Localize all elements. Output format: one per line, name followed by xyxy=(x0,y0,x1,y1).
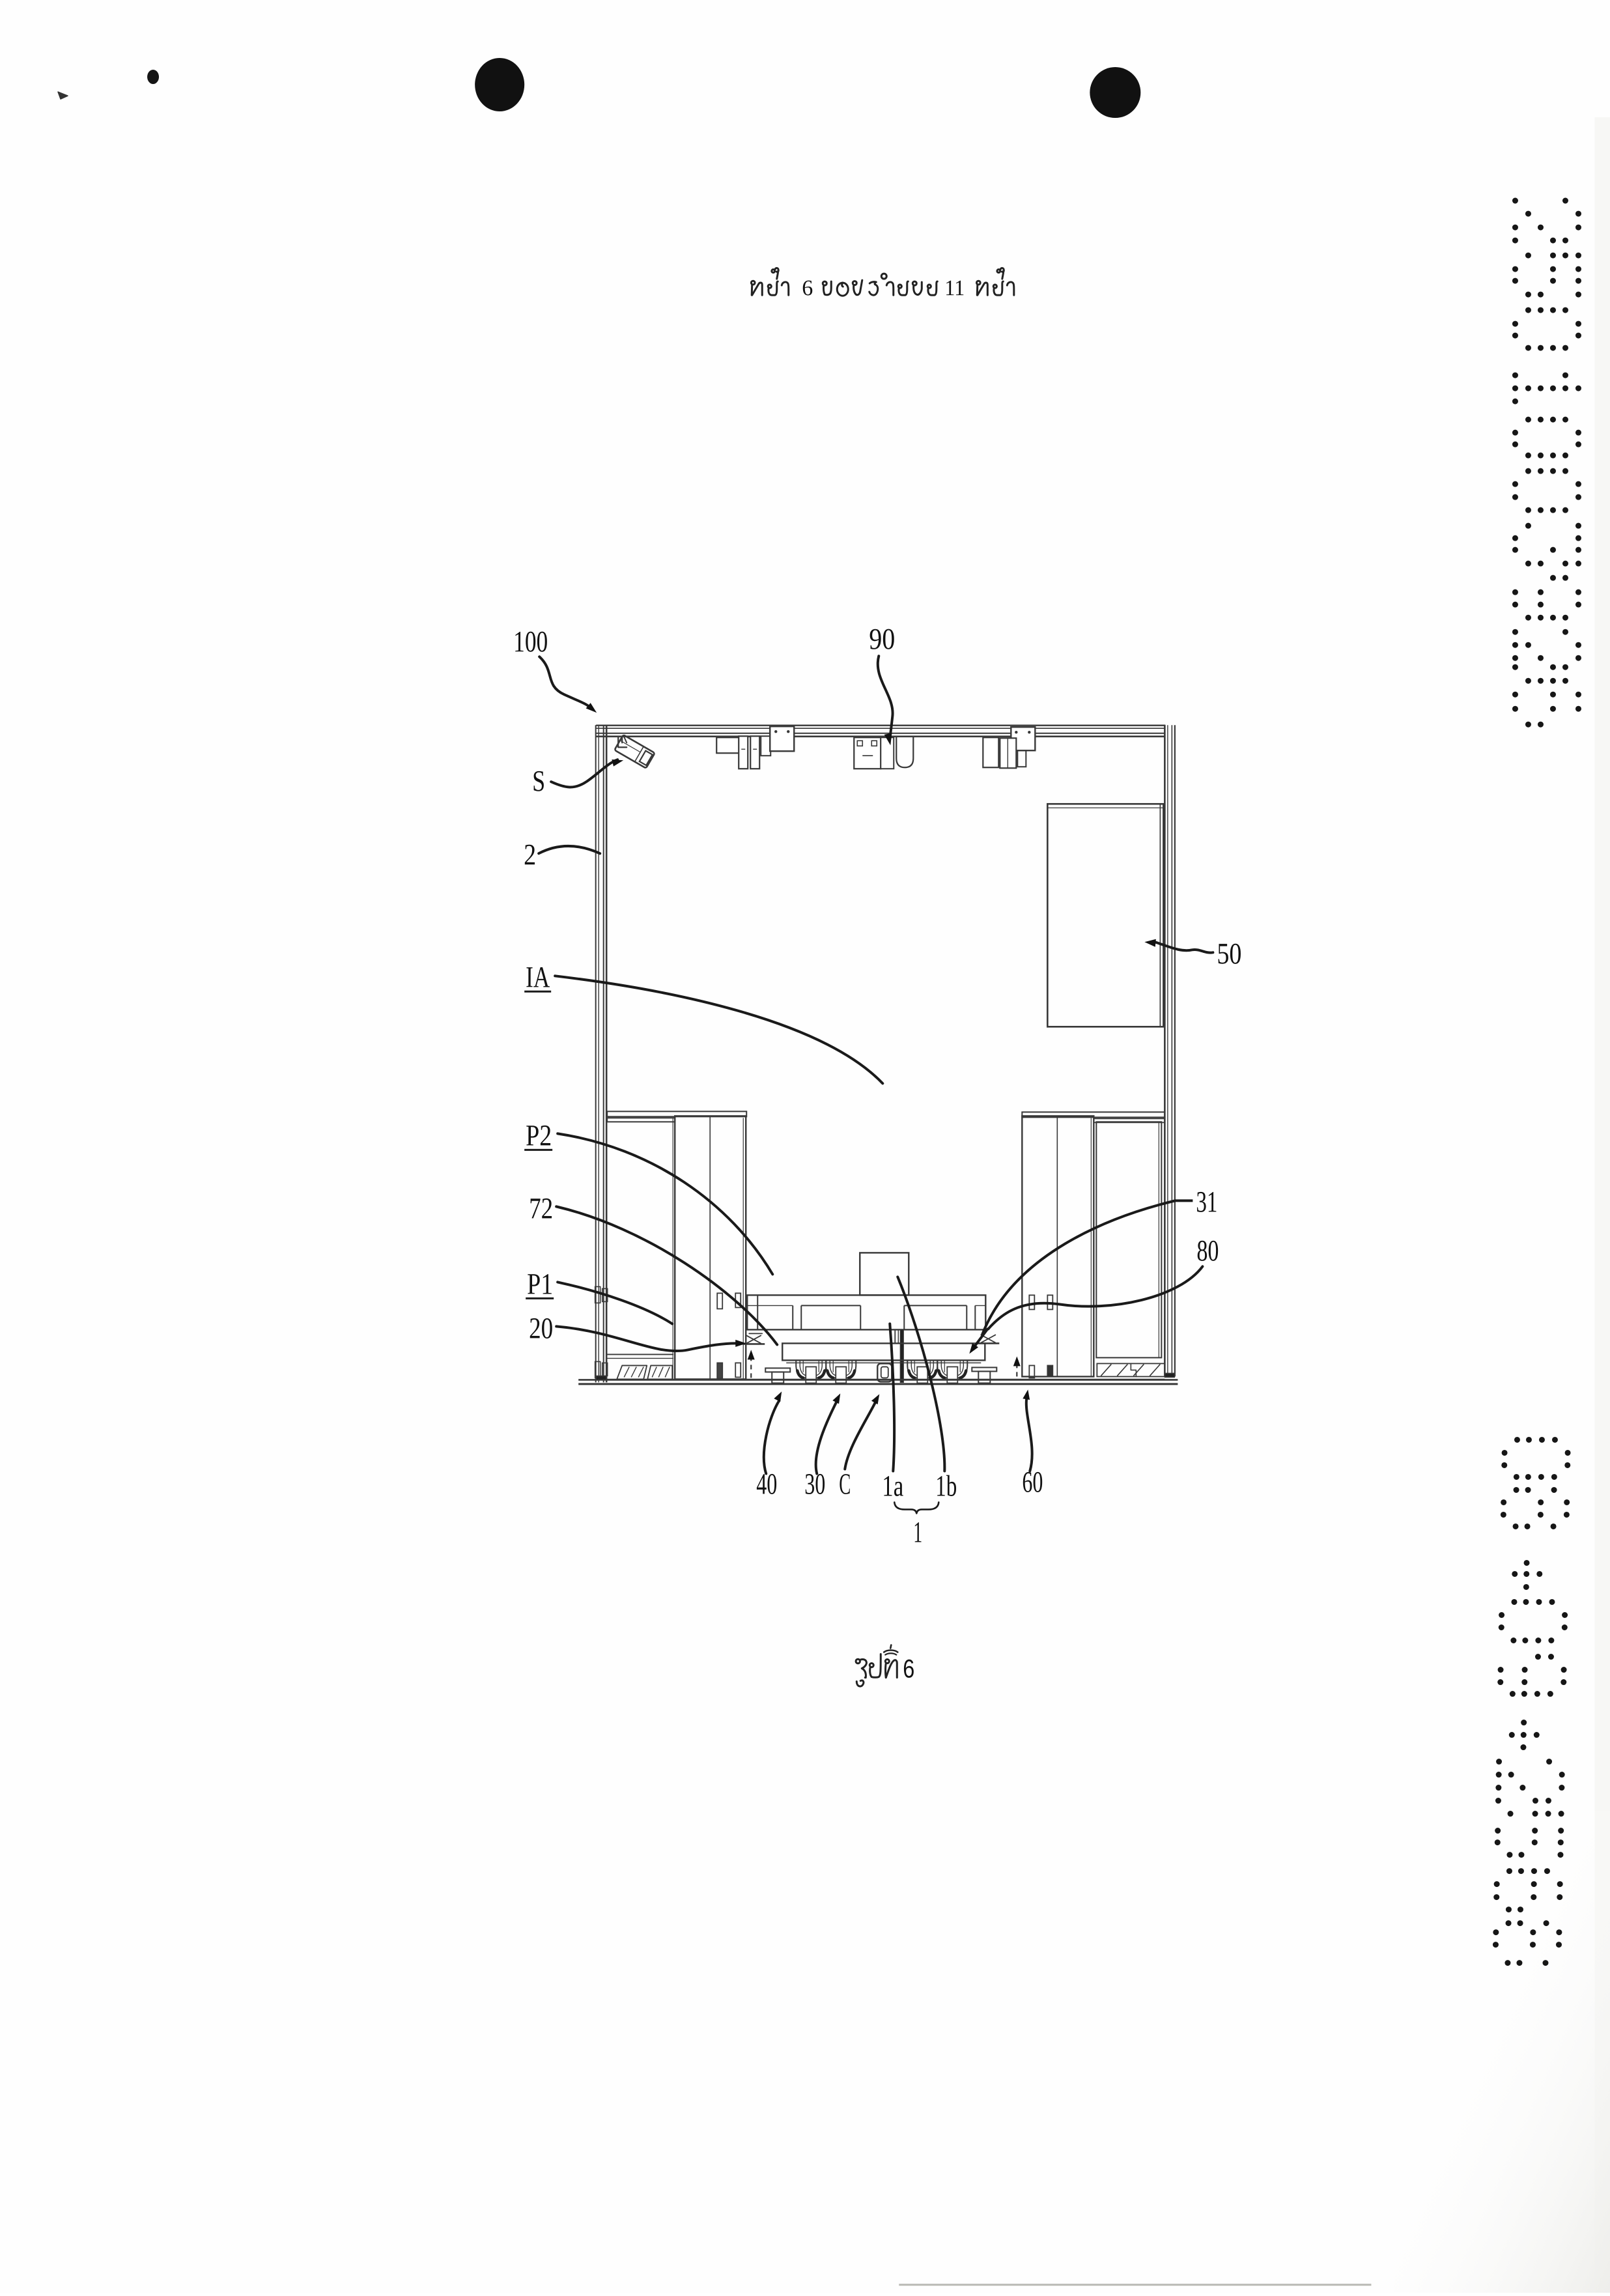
svg-text:1: 1 xyxy=(913,1515,922,1548)
svg-text:90: 90 xyxy=(869,622,895,655)
svg-text:2: 2 xyxy=(524,838,536,871)
svg-text:IA: IA xyxy=(526,960,550,993)
svg-text:6: 6 xyxy=(802,276,813,300)
svg-text:11: 11 xyxy=(944,276,965,300)
svg-text:60: 60 xyxy=(1022,1465,1043,1498)
svg-text:50: 50 xyxy=(1217,937,1241,970)
svg-text:P2: P2 xyxy=(526,1118,552,1152)
svg-text:6: 6 xyxy=(903,1655,914,1684)
svg-text:31: 31 xyxy=(1196,1185,1217,1218)
svg-text:P1: P1 xyxy=(527,1267,553,1300)
svg-text:80: 80 xyxy=(1196,1234,1219,1267)
svg-text:30: 30 xyxy=(804,1467,825,1500)
svg-text:20: 20 xyxy=(529,1311,553,1344)
svg-text:72: 72 xyxy=(529,1191,553,1225)
svg-text:100: 100 xyxy=(513,625,548,658)
svg-text:S: S xyxy=(532,764,545,797)
svg-text:1b: 1b xyxy=(935,1469,957,1502)
svg-text:C: C xyxy=(839,1467,851,1500)
svg-text:1a: 1a xyxy=(882,1469,903,1502)
